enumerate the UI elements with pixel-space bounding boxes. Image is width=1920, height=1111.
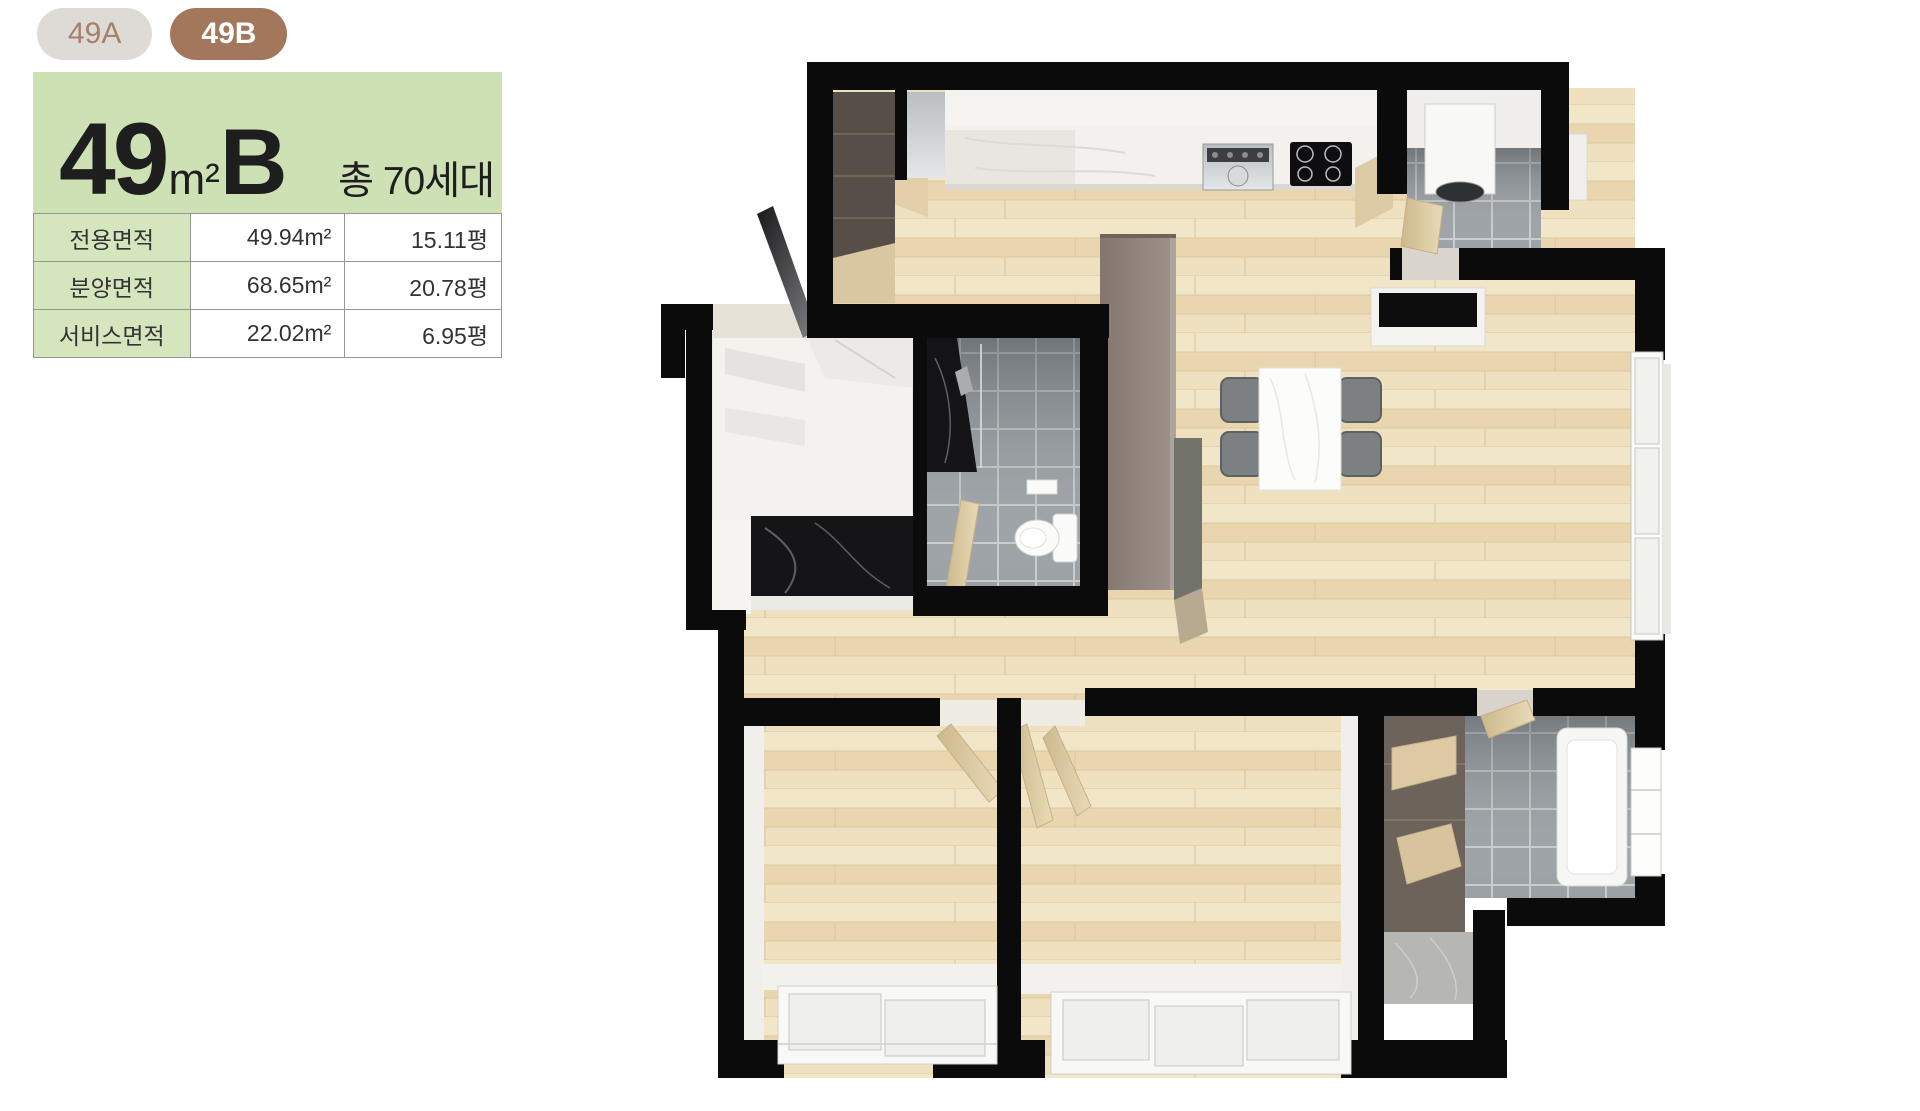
table-row: 전용면적 49.94m² 15.11평 xyxy=(34,214,502,262)
bathroom-door xyxy=(1401,198,1443,254)
unit-area-number: 49 xyxy=(59,108,166,210)
row-label: 전용면적 xyxy=(34,214,191,262)
bedroom2-window xyxy=(1051,992,1351,1074)
unit-type-letter: B xyxy=(220,115,288,209)
floor-plan-image xyxy=(655,48,1675,1106)
bathroom-main xyxy=(927,338,1080,600)
pantry-cabinet xyxy=(833,92,895,303)
bedroom1-window xyxy=(778,986,997,1064)
tab-49a[interactable]: 49A xyxy=(37,8,152,60)
cooktop-icon xyxy=(1290,142,1352,186)
unit-type-tabs: 49A 49B xyxy=(37,8,287,60)
dining-table xyxy=(1259,368,1341,490)
bathtub-icon xyxy=(1557,728,1627,886)
area-table: 전용면적 49.94m² 15.11평 분양면적 68.65m² 20.78평 … xyxy=(33,213,502,358)
row-pyeong: 6.95평 xyxy=(345,310,502,358)
bathroom-bottom-right xyxy=(1465,690,1635,898)
entry-closet xyxy=(712,334,913,614)
total-households: 총 70세대 xyxy=(338,162,494,201)
tab-49b[interactable]: 49B xyxy=(170,8,287,60)
bathroom-window xyxy=(1631,748,1661,876)
row-sqm: 49.94m² xyxy=(190,214,345,262)
living-room-window xyxy=(1631,352,1671,640)
chair-icon xyxy=(1221,432,1263,476)
table-row: 서비스면적 22.02m² 6.95평 xyxy=(34,310,502,358)
stove-icon xyxy=(1203,144,1273,190)
table-row: 분양면적 68.65m² 20.78평 xyxy=(34,262,502,310)
unit-info-card: 49 m² B 총 70세대 전용면적 49.94m² 15.11평 분양면적 … xyxy=(33,72,502,358)
row-pyeong: 15.11평 xyxy=(345,214,502,262)
floor-plan-svg xyxy=(655,48,1675,1106)
chair-icon xyxy=(1339,378,1381,422)
unit-header: 49 m² B 총 70세대 xyxy=(33,72,502,213)
utility-nook xyxy=(1384,708,1465,932)
unit-area-unit: m² xyxy=(168,158,219,202)
row-label: 분양면적 xyxy=(34,262,191,310)
row-sqm: 22.02m² xyxy=(190,310,345,358)
washer-icon xyxy=(1425,104,1495,202)
row-label: 서비스면적 xyxy=(34,310,191,358)
row-sqm: 68.65m² xyxy=(190,262,345,310)
tv-console xyxy=(1371,288,1485,346)
chair-icon xyxy=(1221,378,1263,422)
row-pyeong: 20.78평 xyxy=(345,262,502,310)
balcony-slab xyxy=(1384,932,1473,1004)
chair-icon xyxy=(1339,432,1381,476)
